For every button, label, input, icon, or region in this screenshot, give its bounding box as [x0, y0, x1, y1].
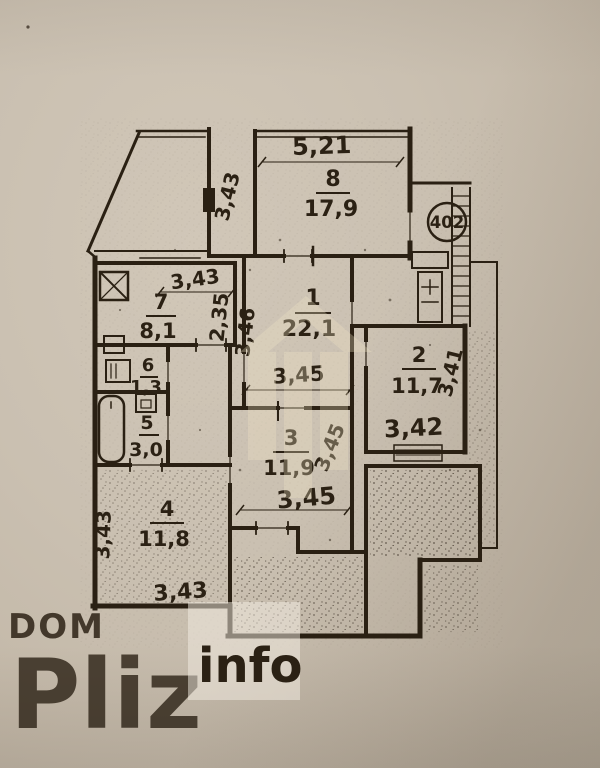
dim-room4-depth: 3,43 — [90, 510, 116, 560]
room-2-number: 2 — [412, 343, 427, 367]
room-7-number: 7 — [154, 290, 169, 314]
floor-plan-drawing: 402 5,21 8 17,9 3,43 3,43 7 8,1 2,35 3,4… — [0, 0, 600, 768]
room-6-area: 1,3 — [130, 377, 162, 398]
floor-plan-photo: 402 5,21 8 17,9 3,43 3,43 7 8,1 2,35 3,4… — [0, 0, 600, 768]
apartment-number: 402 — [430, 213, 464, 232]
dim-room8-width: 5,21 — [292, 131, 352, 161]
room-6-number: 6 — [142, 355, 155, 376]
watermark-pliz-text: Pliz — [10, 639, 202, 751]
dim-room2-width: 3,42 — [383, 412, 444, 443]
room-4-area: 11,8 — [138, 527, 190, 551]
dim-room7-depth: 2,35 — [205, 291, 234, 343]
watermark-info-text: info — [198, 638, 302, 694]
room-5-number: 5 — [140, 412, 153, 434]
paper-speck — [26, 25, 29, 28]
room-5-area: 3,0 — [129, 439, 163, 461]
room-8-area: 17,9 — [304, 197, 358, 222]
room-4-number: 4 — [160, 497, 175, 521]
room-7-area: 8,1 — [139, 319, 176, 343]
room-8-number: 8 — [325, 167, 340, 192]
